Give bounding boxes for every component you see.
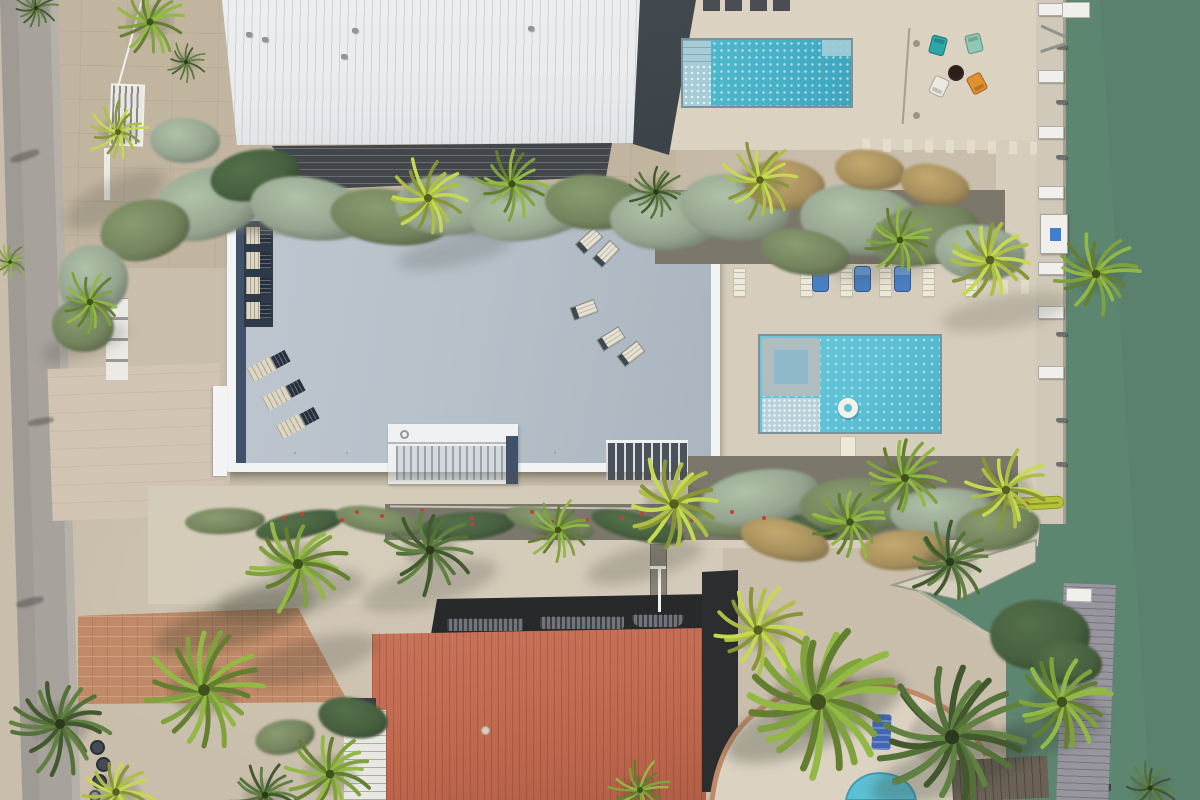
hedge-flower — [470, 516, 474, 520]
hedge-flower — [730, 510, 734, 514]
lounger-back — [260, 303, 271, 318]
kayak-seam — [1011, 502, 1059, 507]
roof-vent-speck — [341, 54, 347, 59]
red-metal-roof-house — [372, 628, 706, 800]
trash-bin — [92, 774, 107, 789]
dock-box — [1038, 262, 1064, 275]
pergola-beam — [725, 0, 742, 11]
gravel-bed — [170, 192, 600, 236]
dock-box — [1038, 126, 1064, 139]
spa-hot-tub — [772, 348, 810, 386]
trash-bin — [89, 790, 101, 800]
chair-back — [968, 36, 979, 42]
lounge-chair-blue — [812, 266, 829, 292]
lounger-back — [260, 278, 271, 293]
gravel-bed — [688, 456, 1018, 538]
dock-cleat-icon — [1056, 462, 1067, 466]
pool-tanning-ledge — [762, 398, 820, 432]
deck-dot — [913, 40, 920, 47]
flagpole — [658, 566, 661, 612]
hedge-flower — [585, 518, 589, 522]
chair-back — [974, 83, 985, 91]
rooftop-lounger — [246, 252, 271, 269]
pergola-beam — [773, 0, 790, 11]
dock-box — [1038, 3, 1064, 16]
white-corrugated-roof — [220, 0, 700, 160]
roof-vent — [481, 726, 490, 735]
hedge-flower — [282, 516, 286, 520]
hedge-flower — [550, 520, 554, 524]
wooden-dock — [1056, 583, 1116, 800]
hedge-flower — [620, 516, 624, 520]
lounge-chair-blue — [894, 266, 911, 292]
boat-lift-box — [1062, 2, 1090, 18]
dock-cleat-icon — [1056, 155, 1067, 159]
trash-bin — [90, 740, 105, 755]
white-deck-stairs — [344, 710, 386, 800]
roof-vent-speck — [262, 37, 268, 42]
stair-roof-mark — [400, 430, 409, 439]
hedge-flower — [530, 510, 534, 514]
hedge-flower — [762, 516, 766, 520]
side-wall — [213, 386, 227, 476]
louver-vent — [632, 614, 684, 627]
dock-box — [1038, 186, 1064, 199]
hedge-flower — [470, 522, 474, 526]
pergola-beam — [703, 0, 720, 11]
dock-box-small — [1066, 588, 1092, 603]
hedge-flower — [380, 514, 384, 518]
dark-wood-deck — [951, 756, 1049, 800]
white-metal-roof-house — [220, 0, 700, 205]
lounge-chair-blue — [854, 266, 871, 292]
louver-vent — [540, 616, 624, 629]
roof-vent-speck — [246, 32, 252, 37]
fire-pit — [948, 65, 964, 81]
dock-cleat-icon — [1056, 332, 1067, 336]
lounge-chair-white — [733, 268, 746, 298]
kayak-seat — [1023, 501, 1029, 507]
hedge-flower — [420, 508, 424, 512]
deck-dot — [913, 112, 920, 119]
hedge-flower — [300, 512, 304, 516]
shaded-side-wall — [702, 570, 738, 792]
lounger-back — [260, 253, 271, 268]
hedge-flower — [355, 510, 359, 514]
lounge-chair-blue — [871, 714, 891, 751]
dock-box — [1038, 366, 1064, 379]
aerial-photo-canvas — [0, 0, 1200, 800]
blue-hatch — [1050, 228, 1061, 241]
chair-back — [934, 38, 945, 44]
chair-back — [932, 87, 943, 95]
hedge-flower — [640, 512, 644, 516]
hedge-flower — [340, 518, 344, 522]
lounge-chair-white — [965, 268, 978, 298]
pool-float-ring — [838, 398, 858, 418]
pool-bench — [822, 40, 851, 56]
lounger-cushion — [246, 277, 260, 294]
hedge-flower — [690, 518, 694, 522]
rooftop-lounger — [246, 302, 271, 319]
dock-box-large — [1040, 214, 1068, 254]
pergola-beam — [750, 0, 767, 11]
dock-box — [1038, 306, 1064, 319]
building-shadow — [230, 472, 722, 486]
paver-dash-row — [1000, 280, 1040, 294]
pool-steps — [683, 40, 711, 62]
lounge-chair-white — [840, 268, 853, 298]
roof-vent-speck — [528, 26, 534, 31]
louver-vent — [447, 618, 523, 631]
dock-cleat-icon — [1056, 418, 1067, 422]
gravel-bed — [655, 190, 1005, 264]
white-gate — [109, 83, 145, 146]
trash-bin — [96, 757, 111, 772]
fence-post — [104, 148, 110, 200]
dock-box — [1038, 70, 1064, 83]
rooftop-lounger — [246, 277, 271, 294]
dock-cleat-icon — [1056, 100, 1067, 104]
fence-wall — [106, 298, 128, 380]
roof-vent-speck — [352, 28, 358, 33]
lounge-chair-white — [879, 268, 892, 298]
lounge-chair-white — [922, 268, 935, 298]
lounger-cushion — [246, 302, 260, 319]
lounger-cushion — [246, 252, 260, 269]
